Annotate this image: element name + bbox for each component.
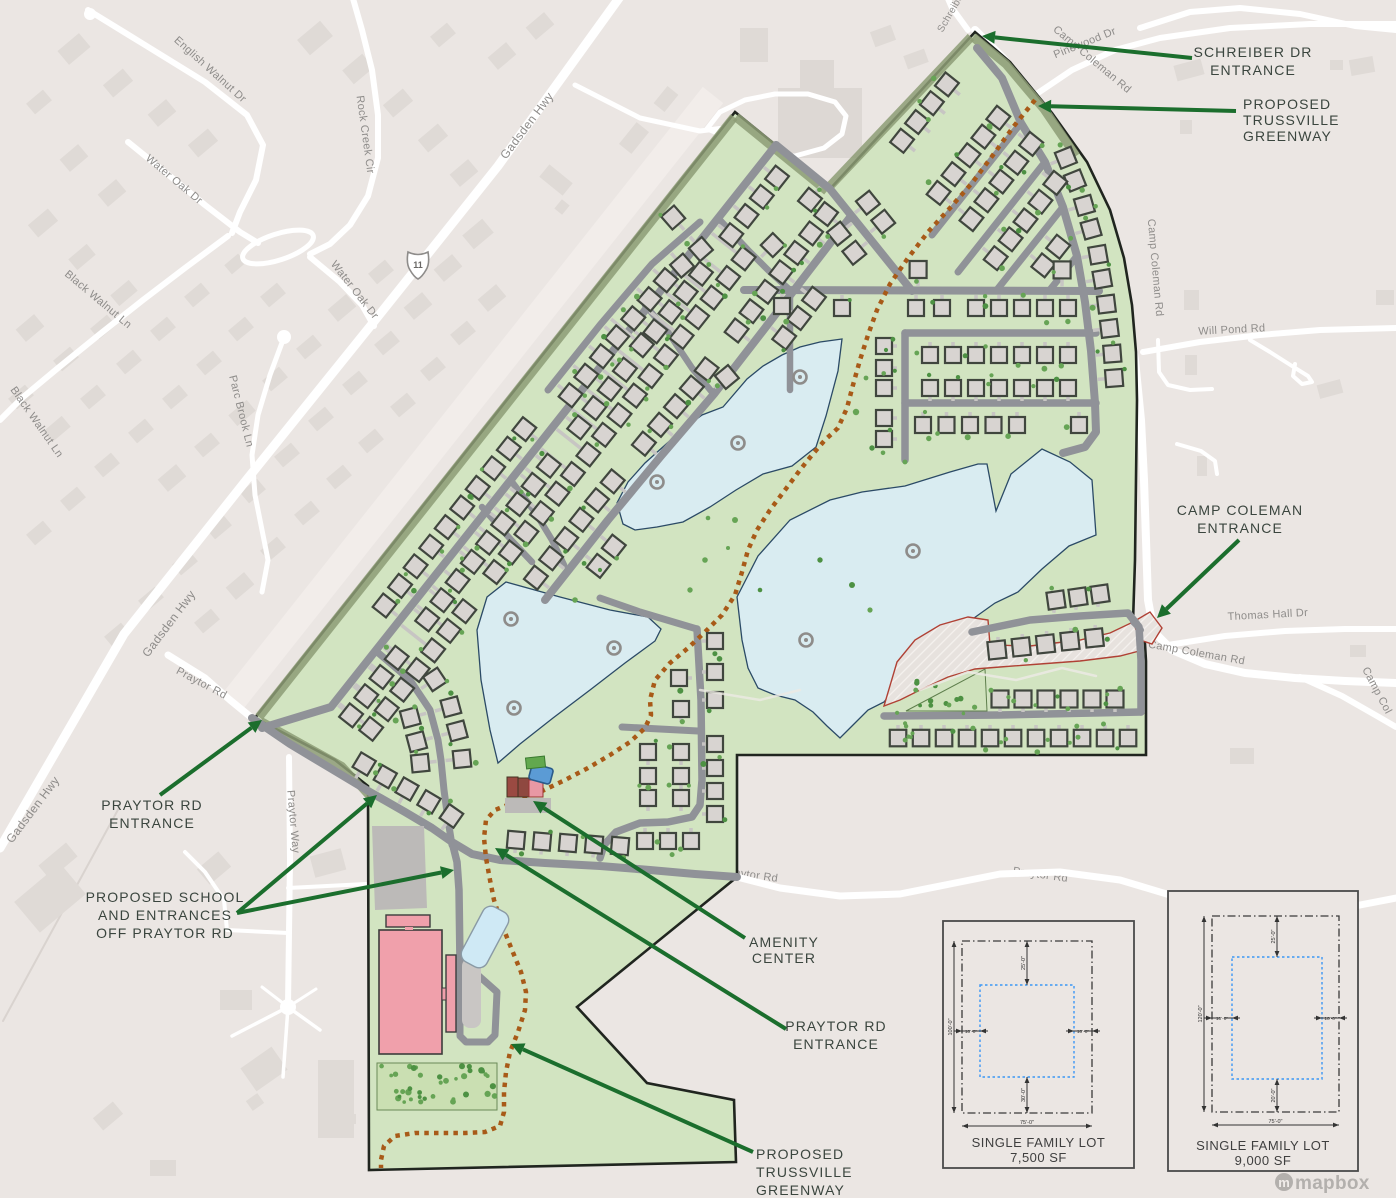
svg-text:10'-0": 10'-0" bbox=[1216, 1016, 1229, 1022]
svg-text:PROPOSED: PROPOSED bbox=[1243, 96, 1331, 112]
svg-text:10'-0": 10'-0" bbox=[1324, 1016, 1337, 1022]
svg-text:TRUSSVILLE: TRUSSVILLE bbox=[1243, 112, 1340, 128]
svg-text:TRUSSVILLE: TRUSSVILLE bbox=[756, 1164, 853, 1180]
svg-text:75'-0": 75'-0" bbox=[1268, 1119, 1282, 1125]
svg-text:20'-0": 20'-0" bbox=[1271, 1088, 1277, 1102]
svg-text:100'-0": 100'-0" bbox=[948, 1018, 954, 1035]
svg-text:PRAYTOR RD: PRAYTOR RD bbox=[101, 797, 203, 813]
svg-text:mapbox: mapbox bbox=[1295, 1173, 1370, 1194]
svg-text:11: 11 bbox=[413, 260, 423, 270]
svg-text:120'-0": 120'-0" bbox=[1198, 1005, 1204, 1022]
svg-text:ENTRANCE: ENTRANCE bbox=[1210, 62, 1296, 78]
svg-text:CAMP COLEMAN: CAMP COLEMAN bbox=[1177, 502, 1304, 518]
svg-text:OFF PRAYTOR RD: OFF PRAYTOR RD bbox=[96, 925, 234, 941]
svg-text:75'-0": 75'-0" bbox=[1020, 1120, 1034, 1126]
svg-text:25'-0": 25'-0" bbox=[1271, 929, 1277, 943]
svg-text:AMENITY: AMENITY bbox=[749, 934, 819, 950]
svg-text:25'-0": 25'-0" bbox=[1021, 956, 1027, 970]
svg-text:SINGLE FAMILY LOT: SINGLE FAMILY LOT bbox=[1196, 1138, 1330, 1153]
svg-text:m: m bbox=[1278, 1175, 1290, 1190]
svg-text:GREENWAY: GREENWAY bbox=[756, 1182, 845, 1198]
svg-text:9,000 SF: 9,000 SF bbox=[1235, 1153, 1292, 1168]
svg-text:PRAYTOR RD: PRAYTOR RD bbox=[785, 1018, 887, 1034]
svg-text:10'-0": 10'-0" bbox=[965, 1029, 978, 1035]
svg-text:ENTRANCE: ENTRANCE bbox=[793, 1036, 879, 1052]
svg-text:ENTRANCE: ENTRANCE bbox=[109, 815, 195, 831]
svg-text:PROPOSED: PROPOSED bbox=[756, 1146, 844, 1162]
svg-text:PROPOSED SCHOOL: PROPOSED SCHOOL bbox=[86, 889, 245, 905]
svg-text:ENTRANCE: ENTRANCE bbox=[1197, 520, 1283, 536]
svg-text:7,500 SF: 7,500 SF bbox=[1010, 1150, 1067, 1165]
svg-text:GREENWAY: GREENWAY bbox=[1243, 128, 1332, 144]
svg-text:AND ENTRANCES: AND ENTRANCES bbox=[98, 907, 232, 923]
svg-text:SCHREIBER DR: SCHREIBER DR bbox=[1194, 44, 1313, 60]
svg-text:CENTER: CENTER bbox=[752, 950, 816, 966]
svg-text:10'-0": 10'-0" bbox=[1077, 1029, 1090, 1035]
svg-text:30'-0": 30'-0" bbox=[1021, 1088, 1027, 1102]
svg-text:SINGLE FAMILY LOT: SINGLE FAMILY LOT bbox=[972, 1135, 1106, 1150]
